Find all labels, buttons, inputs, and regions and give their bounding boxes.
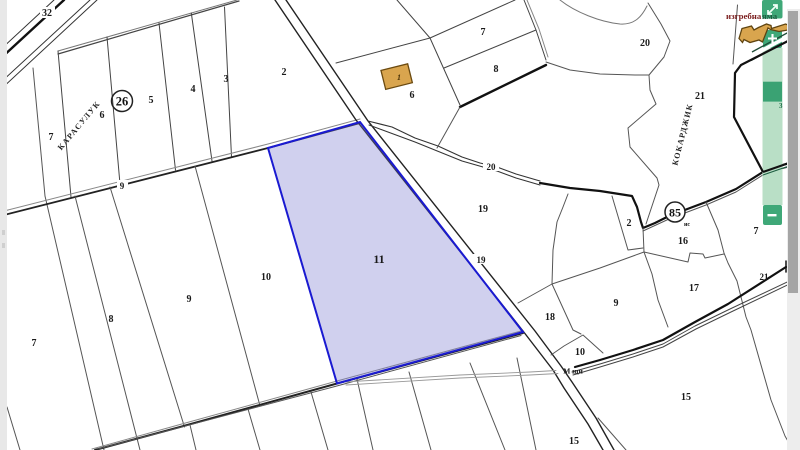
- svg-text:15: 15: [681, 392, 691, 403]
- svg-text:21: 21: [695, 91, 705, 102]
- svg-text:6: 6: [100, 110, 105, 121]
- svg-text:7: 7: [49, 132, 54, 143]
- svg-text:26: 26: [116, 95, 129, 109]
- svg-text:М щи: М щи: [563, 367, 583, 376]
- svg-text:4: 4: [191, 84, 196, 95]
- svg-text:19: 19: [477, 255, 487, 265]
- svg-text:19: 19: [478, 204, 488, 215]
- svg-text:5: 5: [149, 95, 154, 106]
- svg-text:9: 9: [120, 181, 125, 191]
- svg-text:20: 20: [640, 38, 650, 49]
- svg-text:яма: яма: [762, 11, 778, 21]
- svg-text:2: 2: [627, 218, 632, 229]
- svg-text:18: 18: [545, 312, 555, 323]
- svg-text:1: 1: [397, 73, 401, 82]
- svg-text:32: 32: [42, 8, 52, 19]
- svg-text:8: 8: [494, 64, 499, 75]
- svg-text:15: 15: [569, 436, 579, 447]
- svg-text:6: 6: [410, 90, 415, 101]
- svg-text:20: 20: [487, 162, 497, 172]
- svg-text:85: 85: [669, 206, 681, 220]
- svg-text:11: 11: [373, 252, 384, 266]
- svg-text:7: 7: [481, 27, 486, 38]
- svg-text:10: 10: [261, 272, 271, 283]
- svg-text:17: 17: [689, 283, 699, 294]
- svg-text:изгребна: изгребна: [726, 11, 762, 21]
- svg-text:9: 9: [614, 298, 619, 309]
- svg-text:3: 3: [779, 102, 783, 110]
- svg-text:8: 8: [109, 314, 114, 325]
- svg-text:21: 21: [760, 272, 770, 282]
- svg-text:2: 2: [282, 67, 287, 78]
- svg-text:9: 9: [187, 294, 192, 305]
- svg-text:16: 16: [678, 236, 688, 247]
- svg-text:7: 7: [754, 226, 759, 237]
- svg-text:10: 10: [575, 347, 585, 358]
- svg-text:3: 3: [224, 74, 229, 85]
- svg-text:ис: ис: [684, 222, 690, 228]
- svg-text:7: 7: [32, 338, 37, 349]
